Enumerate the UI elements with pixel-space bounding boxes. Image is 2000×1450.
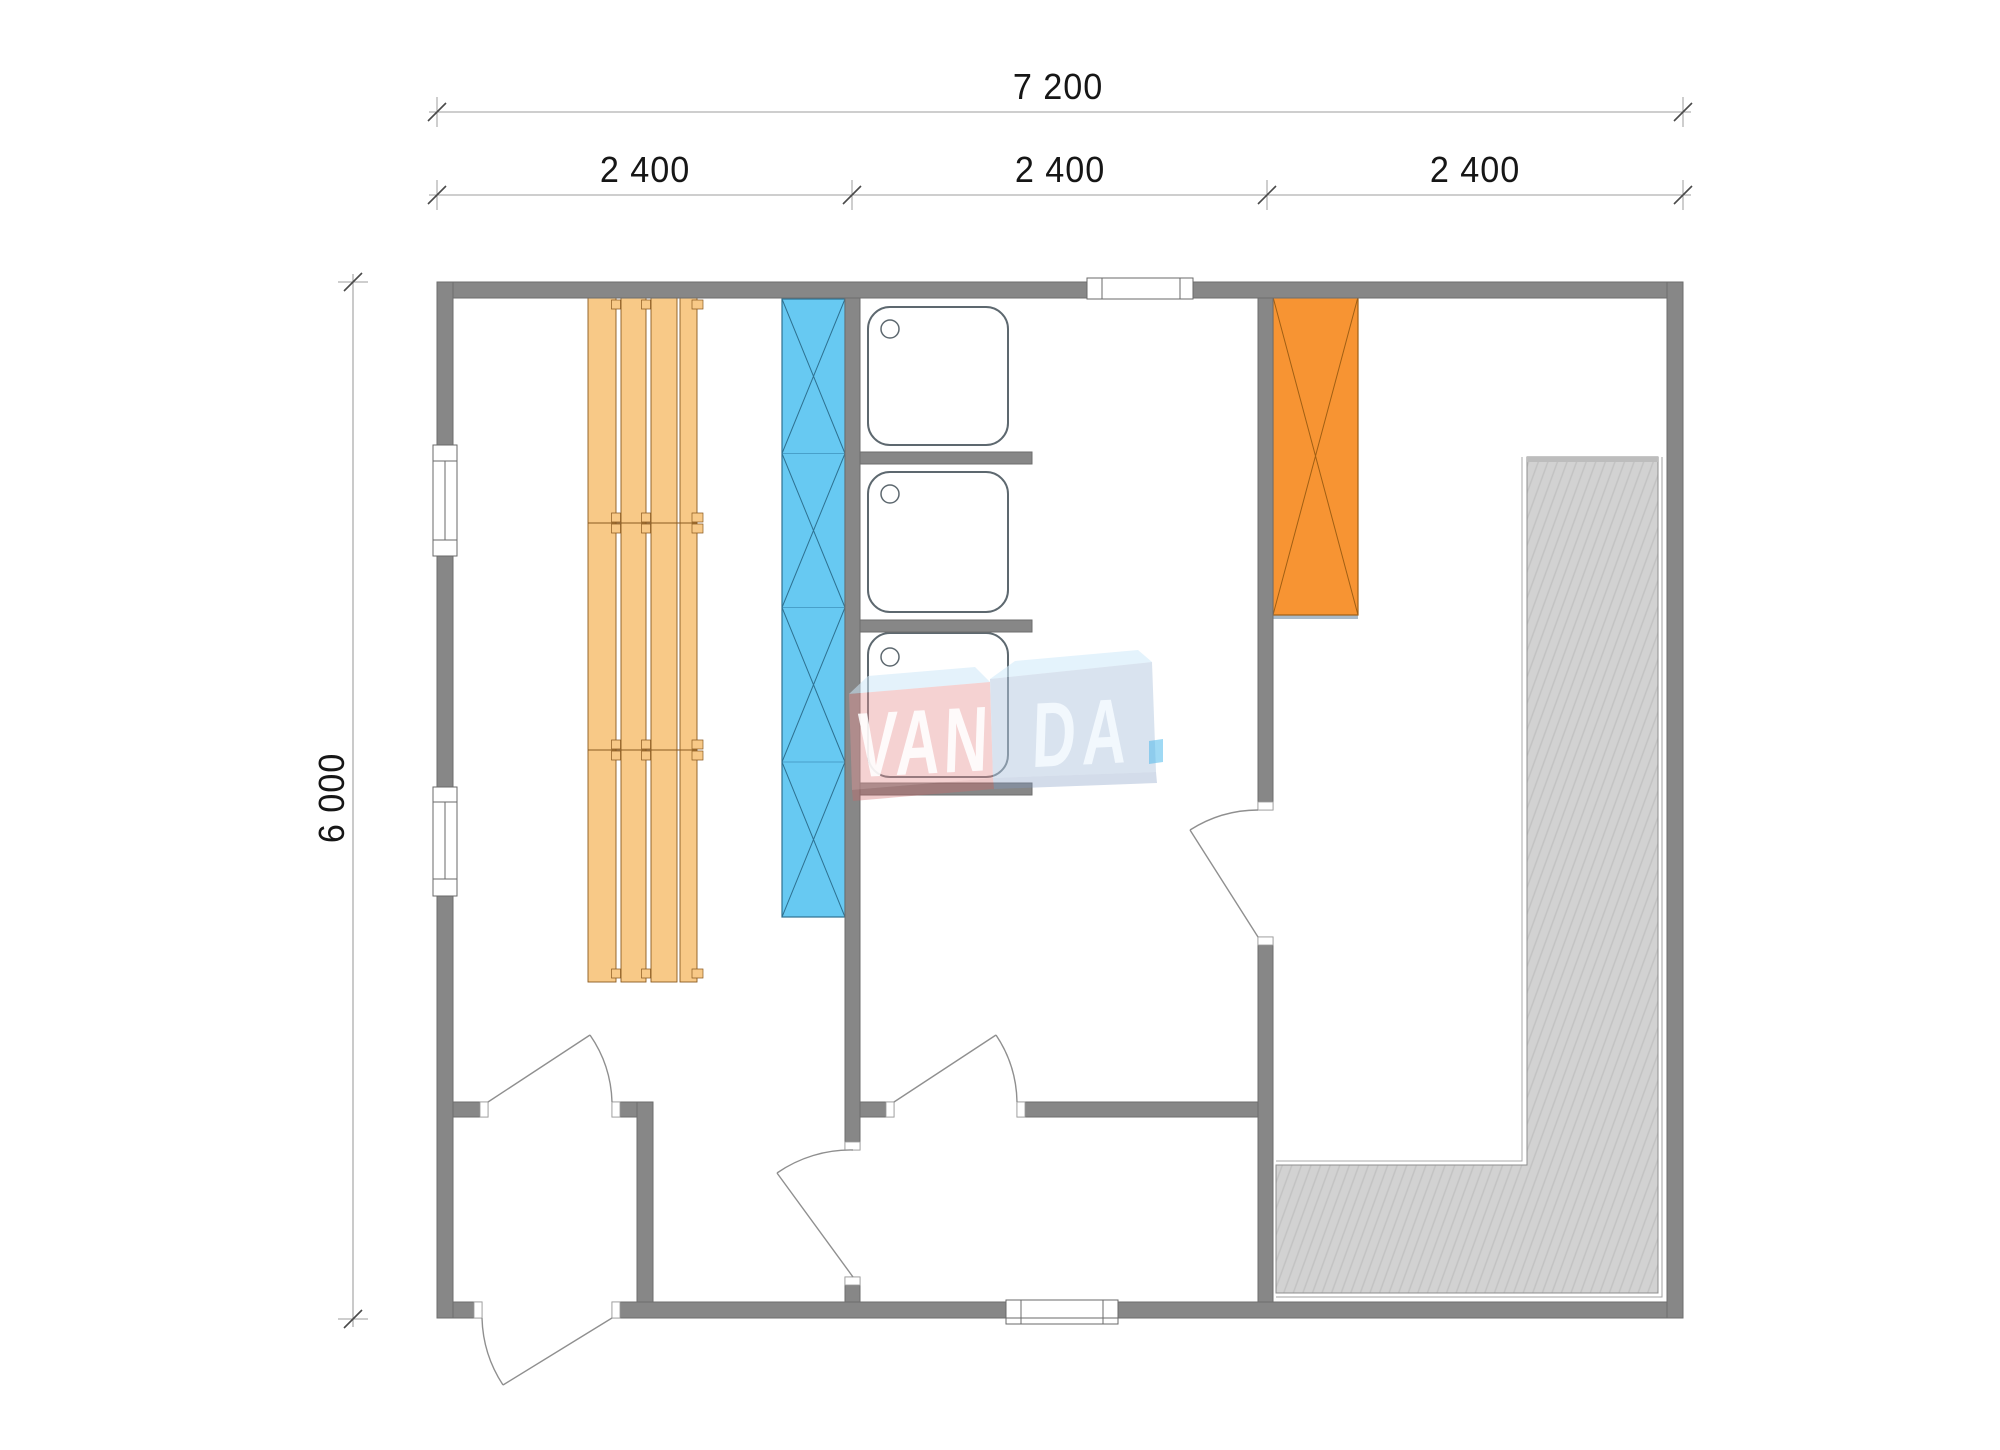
jamb-cap xyxy=(612,1102,620,1117)
jamb-cap xyxy=(845,1142,860,1150)
right-wall xyxy=(1667,282,1683,1318)
shower-drain-icon xyxy=(881,648,899,666)
changing-room-door-leaf xyxy=(777,1173,853,1277)
terrace-top-edge xyxy=(1527,457,1658,462)
watermark-cyan-notch xyxy=(1149,739,1163,764)
bottom-wall-c xyxy=(1118,1302,1683,1318)
floor-plan-canvas xyxy=(0,0,2000,1450)
bench-plank xyxy=(680,297,697,982)
shower-drain-icon xyxy=(881,320,899,338)
jamb-cap xyxy=(886,1102,894,1117)
jamb-cap xyxy=(480,1102,488,1117)
top-wall-left xyxy=(437,282,1087,298)
changing-room-door-arc xyxy=(777,1150,853,1173)
shower-room-door-leaf xyxy=(894,1035,996,1102)
left-wall-c xyxy=(437,896,453,1318)
left-wall-a xyxy=(437,282,453,445)
vestibule-east-wall xyxy=(637,1102,653,1302)
shower-room-door-arc xyxy=(996,1035,1017,1102)
jamb-cap xyxy=(1258,937,1273,945)
watermark-text-van: VAN xyxy=(855,693,994,792)
bench-plank xyxy=(621,297,646,982)
changing-room-north-wall-right xyxy=(1017,1102,1258,1117)
dim-label-overall-depth: 6 000 xyxy=(311,703,353,893)
vestibule-sauna-door-arc xyxy=(590,1035,612,1102)
left-wall-window-lower xyxy=(433,787,457,896)
left-wall-window-upper xyxy=(433,445,457,556)
terrace-room-door-arc xyxy=(1190,810,1258,830)
vestibule-sauna-door-leaf xyxy=(488,1035,590,1102)
shower-terrace-wall-lower xyxy=(1258,937,1273,1302)
jamb-cap xyxy=(474,1302,482,1318)
watermark-text-da: DA xyxy=(1031,685,1135,783)
shower-partition-2 xyxy=(860,620,1032,632)
bottom-wall-window xyxy=(1006,1300,1118,1324)
terrace-room-door-leaf xyxy=(1190,830,1258,937)
jamb-cap xyxy=(1258,802,1273,810)
wood-stove xyxy=(1262,292,1358,619)
entrance-door-arc xyxy=(482,1318,503,1385)
dim-label-bay-3: 2 400 xyxy=(1380,149,1570,191)
sauna-benches xyxy=(588,297,703,982)
dim-label-bay-1: 2 400 xyxy=(550,149,740,191)
entrance-door-leaf xyxy=(503,1318,612,1385)
heater-body xyxy=(782,299,845,917)
sauna-heater xyxy=(782,299,845,917)
top-wall-right xyxy=(1193,282,1683,298)
bottom-wall-b xyxy=(612,1302,1006,1318)
bench-plank xyxy=(651,297,677,982)
jamb-cap xyxy=(845,1277,860,1285)
shower-terrace-wall-upper xyxy=(1258,298,1273,810)
left-wall-b xyxy=(437,556,453,787)
shower-partition-1 xyxy=(860,452,1032,464)
dim-label-overall-width: 7 200 xyxy=(963,66,1153,108)
top-wall-window xyxy=(1087,278,1193,299)
bench-plank xyxy=(588,297,616,982)
dim-label-bay-2: 2 400 xyxy=(965,149,1155,191)
jamb-cap xyxy=(612,1302,620,1318)
jamb-cap xyxy=(1017,1102,1025,1117)
shower-drain-icon xyxy=(881,485,899,503)
floor-plan-page: 7 200 2 400 2 400 2 400 6 000 VAN DA xyxy=(0,0,2000,1450)
